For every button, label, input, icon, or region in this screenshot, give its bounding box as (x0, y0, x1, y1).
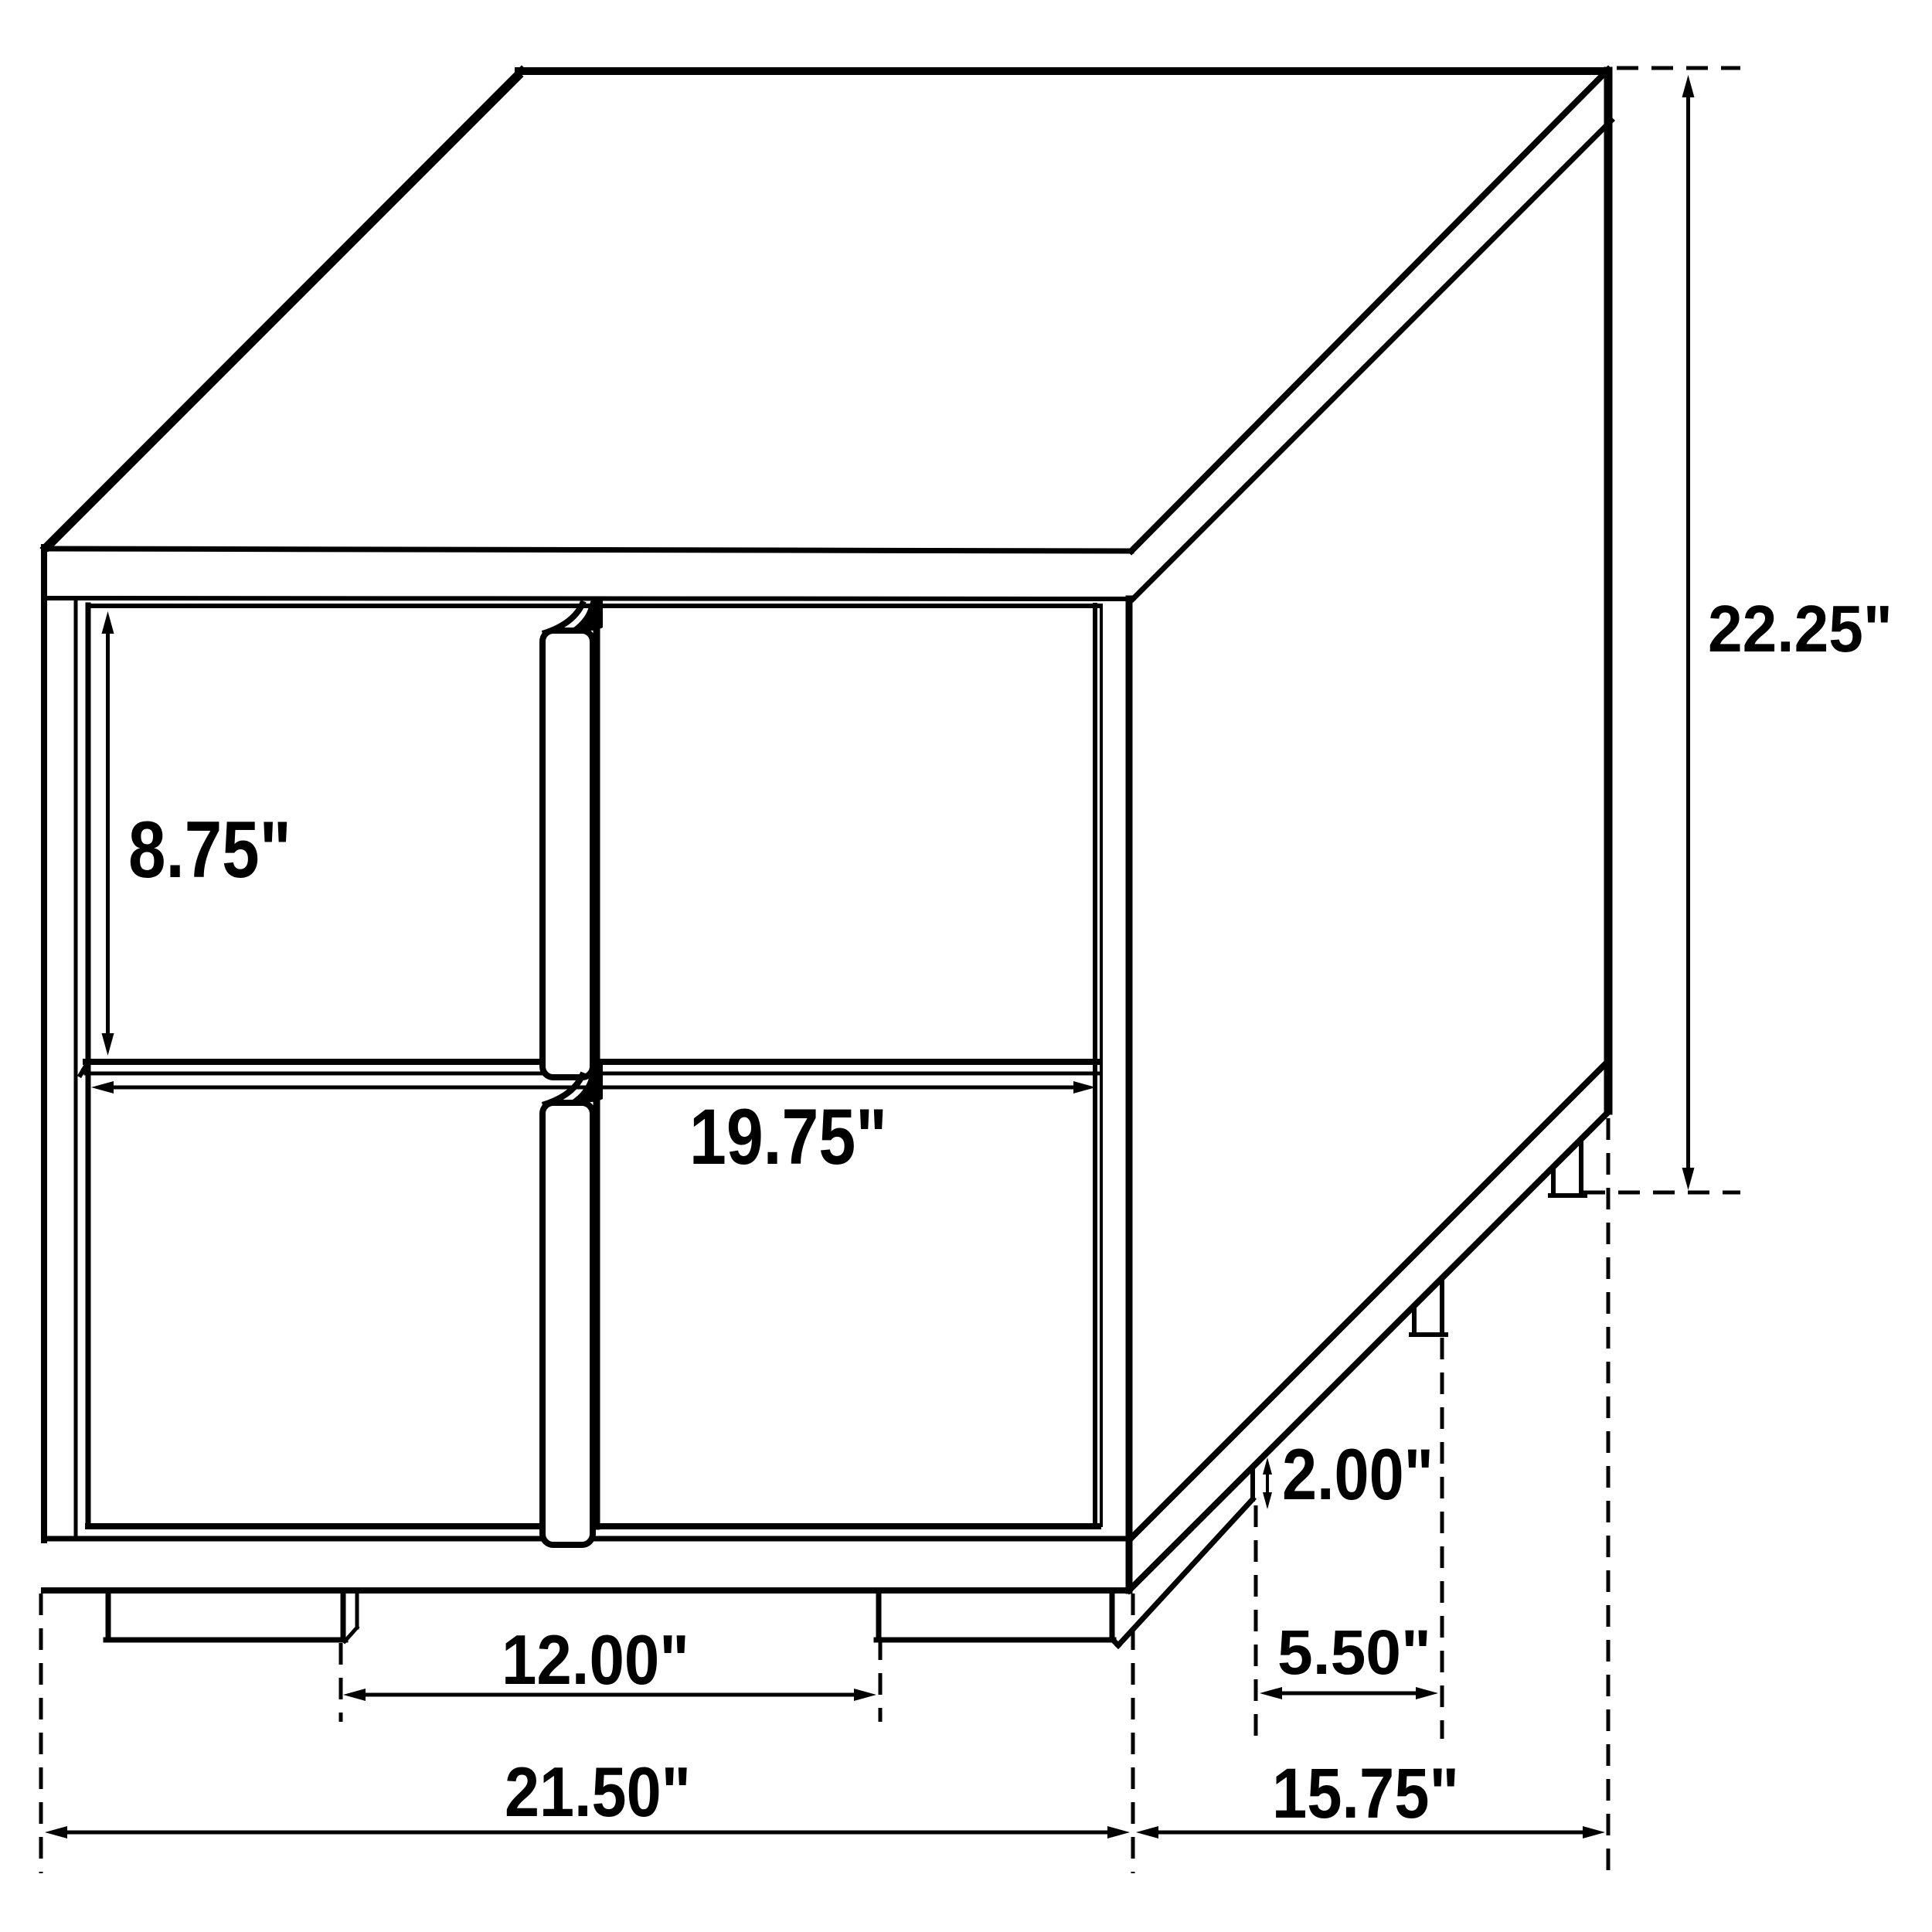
svg-text:15.75": 15.75" (1272, 1754, 1459, 1833)
svg-text:12.00": 12.00" (502, 1621, 689, 1699)
svg-text:8.75": 8.75" (128, 805, 291, 895)
svg-text:2.00": 2.00" (1282, 1434, 1434, 1515)
svg-text:21.50": 21.50" (505, 1753, 691, 1832)
svg-text:5.50": 5.50" (1277, 1617, 1431, 1688)
svg-text:22.25": 22.25" (1708, 593, 1893, 666)
svg-text:19.75": 19.75" (689, 1093, 887, 1181)
